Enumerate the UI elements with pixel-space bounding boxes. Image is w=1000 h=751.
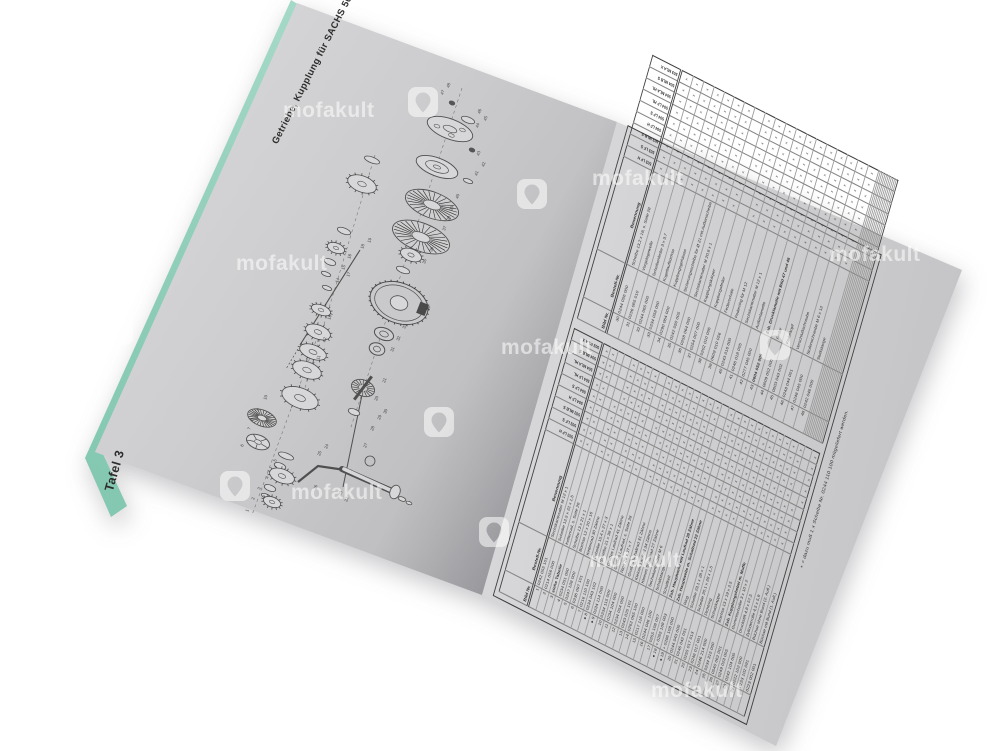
photo-canvas: 4748464544434241403938373635343332313029… [0, 0, 1000, 751]
